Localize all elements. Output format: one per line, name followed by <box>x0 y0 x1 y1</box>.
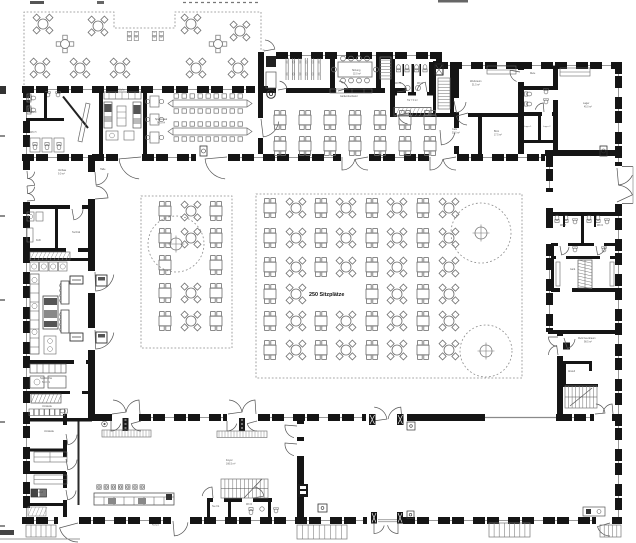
svg-text:Umkleide: Umkleide <box>44 430 55 433</box>
svg-text:WC D: WC D <box>597 225 603 227</box>
svg-text:Diele: Diele <box>530 73 536 75</box>
svg-text:Tee Kü.: Tee Kü. <box>212 506 220 508</box>
svg-text:Garderobenband: Garderobenband <box>340 95 358 98</box>
svg-text:WC H: WC H <box>30 131 37 134</box>
svg-text:Lager 1: Lager 1 <box>524 125 532 128</box>
svg-text:Halle: Halle <box>100 168 106 171</box>
svg-text:53.0 m²: 53.0 m² <box>452 132 460 135</box>
svg-text:45.0 m²: 45.0 m² <box>584 106 592 109</box>
svg-text:Technik: Technik <box>72 231 81 234</box>
svg-text:Lager 2: Lager 2 <box>543 125 551 128</box>
svg-text:WC D: WC D <box>246 504 252 506</box>
svg-text:Lager: Lager <box>583 102 590 105</box>
svg-text:Mehrzweckraum: Mehrzweckraum <box>578 337 596 340</box>
svg-text:Sitzung: Sitzung <box>352 69 361 72</box>
svg-text:Rampe: Rampe <box>152 525 160 527</box>
svg-text:Vorbau: Vorbau <box>58 168 67 172</box>
svg-text:Abstell: Abstell <box>568 370 575 373</box>
svg-text:Tür 7.0 m²: Tür 7.0 m² <box>407 99 418 102</box>
svg-text:Abstell: Abstell <box>36 491 44 494</box>
svg-text:9.0 m²: 9.0 m² <box>58 173 65 176</box>
svg-text:WC D: WC D <box>395 83 401 85</box>
svg-text:98.5 m²: 98.5 m² <box>157 122 165 125</box>
svg-text:Büro: Büro <box>494 130 500 133</box>
svg-text:Kühl: Kühl <box>36 239 41 242</box>
svg-text:WC H: WC H <box>417 83 423 85</box>
svg-text:Umkleide: Umkleide <box>42 405 53 408</box>
svg-text:17.5 m²: 17.5 m² <box>494 134 502 137</box>
svg-text:Werkraum: Werkraum <box>470 80 481 83</box>
svg-text:Spülküche: Spülküche <box>40 376 53 380</box>
svg-text:Foyer: Foyer <box>226 458 233 462</box>
svg-text:Café: Café <box>452 128 458 131</box>
svg-text:166.5 m²: 166.5 m² <box>226 463 236 466</box>
svg-text:WC H: WC H <box>560 225 566 227</box>
svg-text:Küche: Küche <box>118 89 125 92</box>
svg-text:Gard.: Gard. <box>570 268 576 271</box>
svg-text:32.0 m²: 32.0 m² <box>353 73 361 76</box>
svg-text:WC D: WC D <box>30 111 37 114</box>
svg-text:51.5 m²: 51.5 m² <box>472 84 480 87</box>
svg-text:250 Sitzplätze: 250 Sitzplätze <box>309 292 344 298</box>
svg-text:53.0 m²: 53.0 m² <box>42 381 50 384</box>
svg-text:98.5 m²: 98.5 m² <box>584 341 592 344</box>
